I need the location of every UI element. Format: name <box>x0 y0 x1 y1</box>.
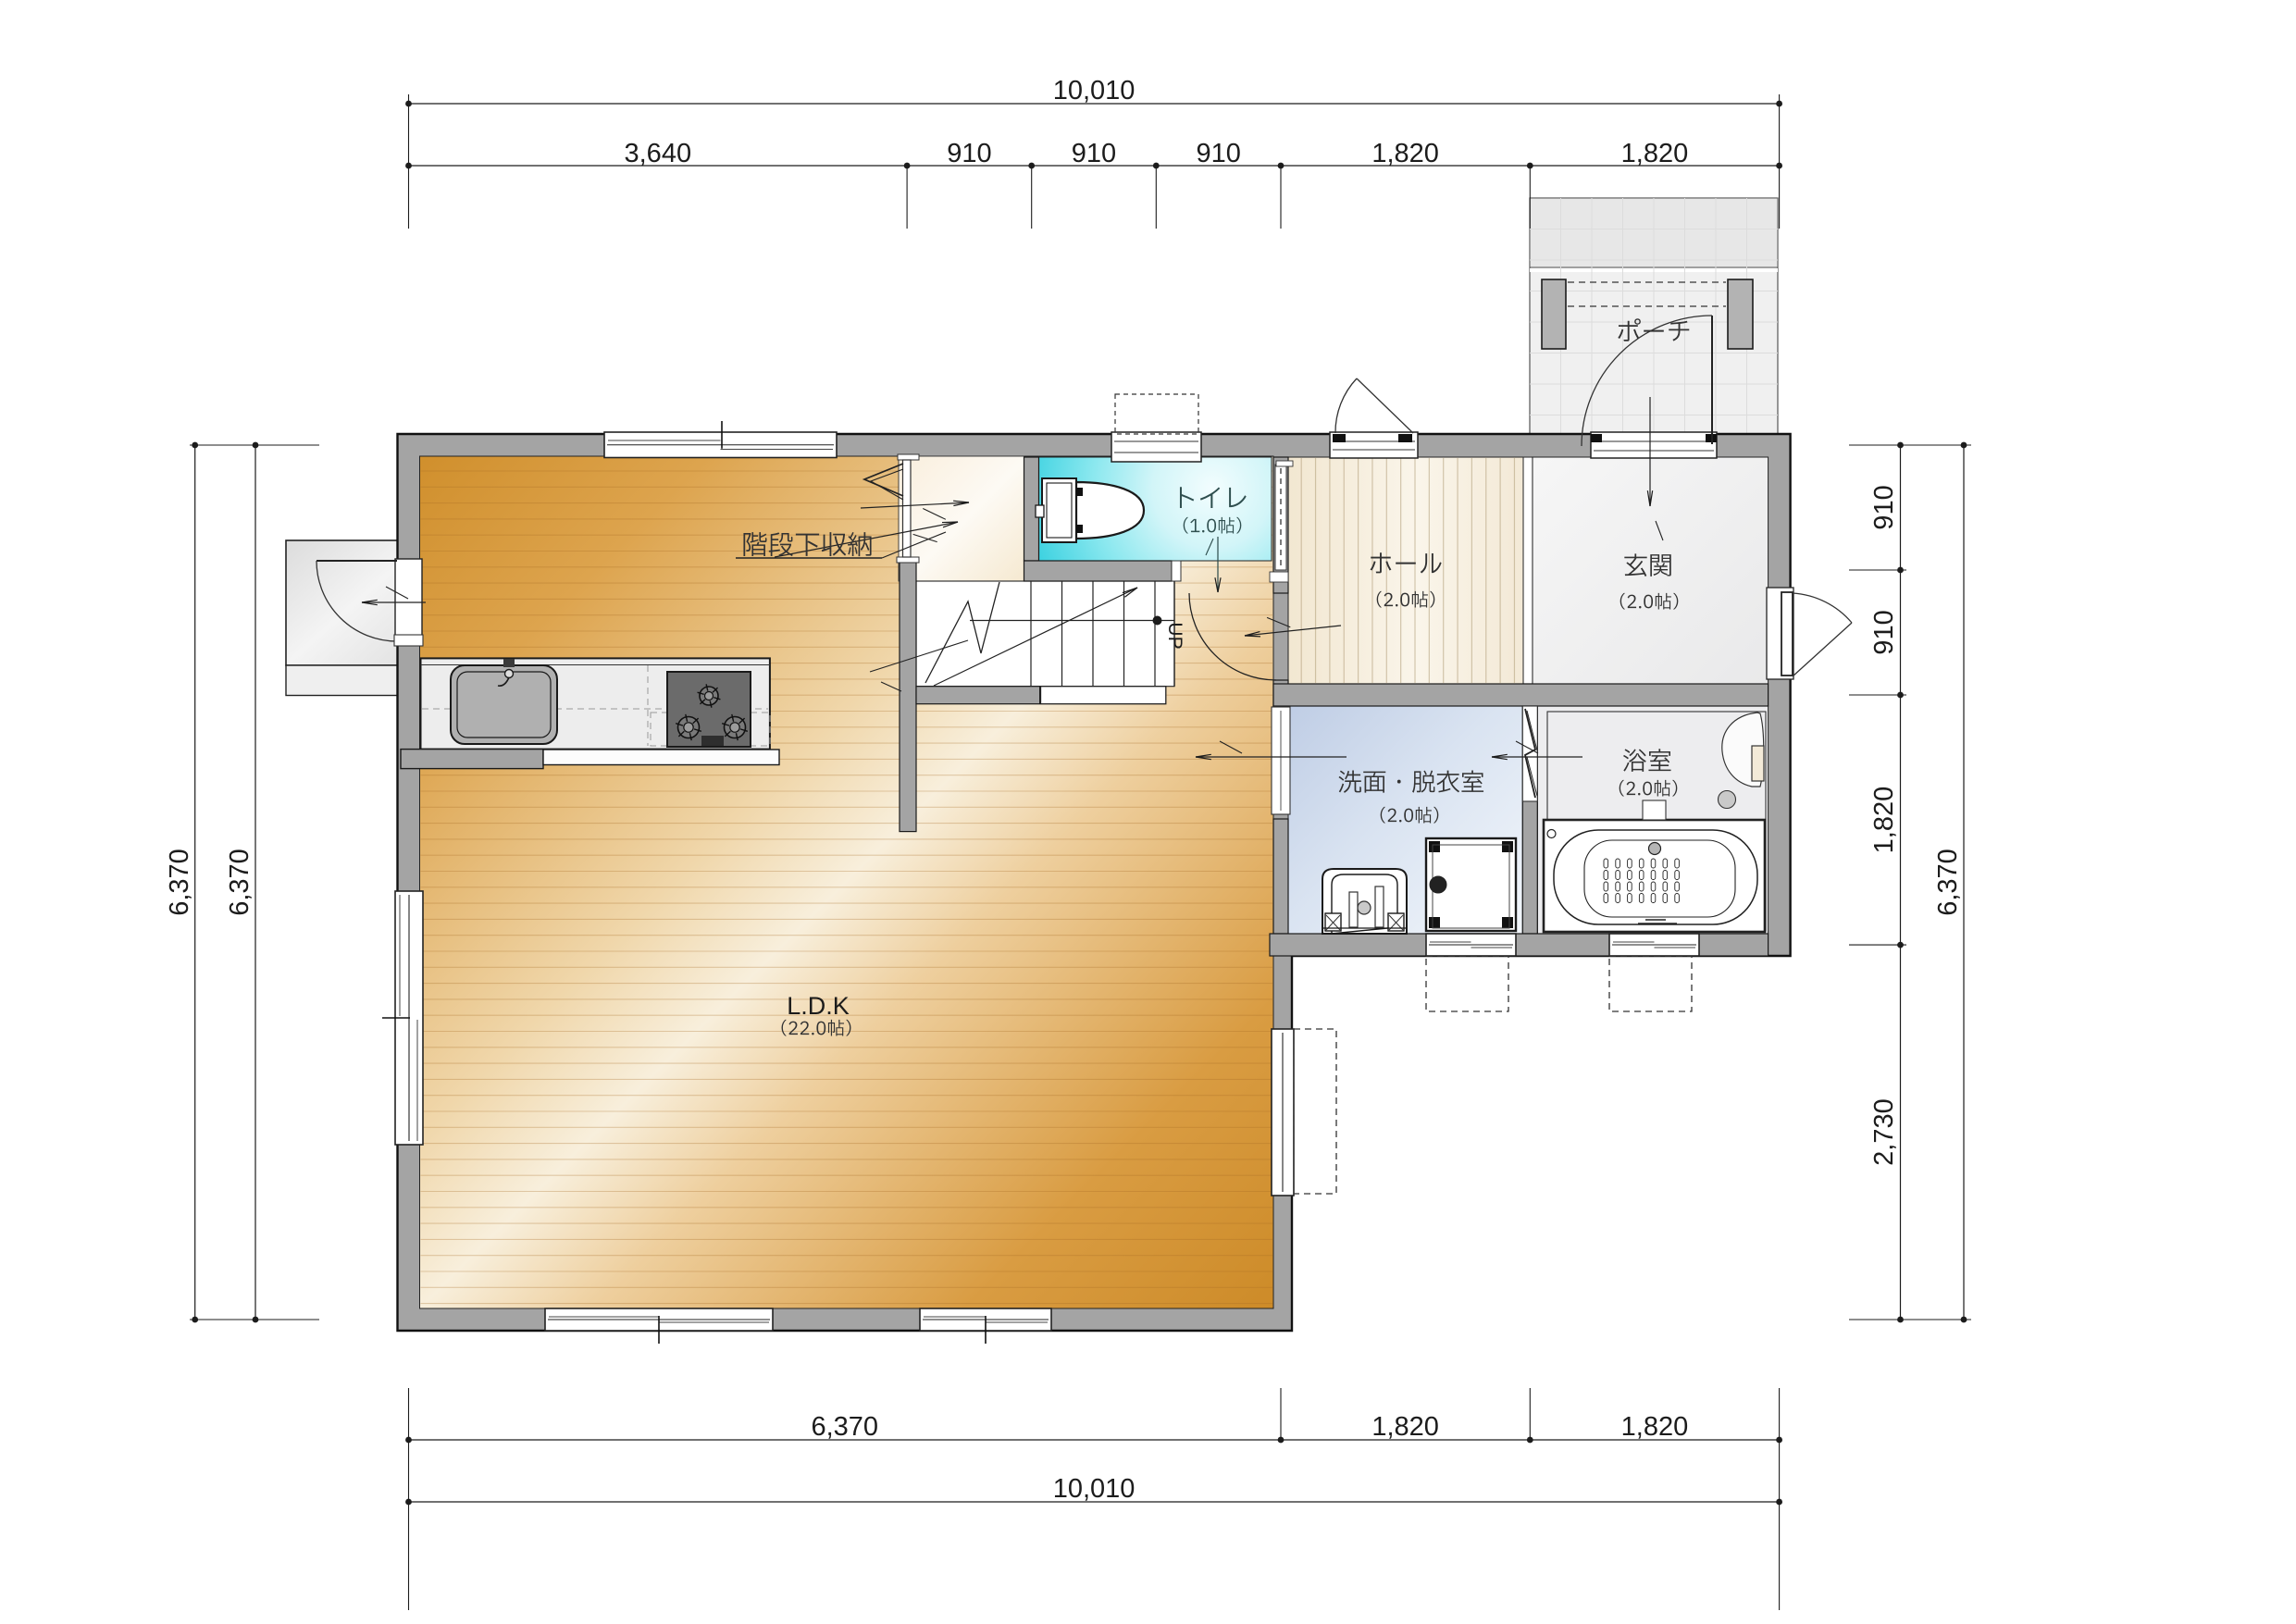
svg-text:6,370: 6,370 <box>225 849 254 916</box>
svg-text:910: 910 <box>1196 139 1240 168</box>
svg-text:1,820: 1,820 <box>1371 139 1439 168</box>
svg-text:910: 910 <box>947 139 991 168</box>
svg-text:1,820: 1,820 <box>1371 1412 1439 1442</box>
svg-text:6,370: 6,370 <box>165 849 194 916</box>
svg-text:1,820: 1,820 <box>1869 787 1899 854</box>
svg-text:3,640: 3,640 <box>625 139 692 168</box>
svg-text:2,730: 2,730 <box>1869 1098 1899 1166</box>
svg-text:1,820: 1,820 <box>1621 1412 1689 1442</box>
svg-text:910: 910 <box>1072 139 1116 168</box>
svg-text:6,370: 6,370 <box>1933 849 1963 916</box>
svg-text:910: 910 <box>1869 610 1899 654</box>
svg-text:UP: UP <box>1164 622 1185 649</box>
svg-text:L.D.K: L.D.K <box>787 992 850 1020</box>
svg-text:1,820: 1,820 <box>1621 139 1689 168</box>
svg-text:6,370: 6,370 <box>811 1412 878 1442</box>
svg-text:910: 910 <box>1869 485 1899 529</box>
svg-text:10,010: 10,010 <box>1053 76 1136 105</box>
svg-text:10,010: 10,010 <box>1053 1474 1136 1504</box>
